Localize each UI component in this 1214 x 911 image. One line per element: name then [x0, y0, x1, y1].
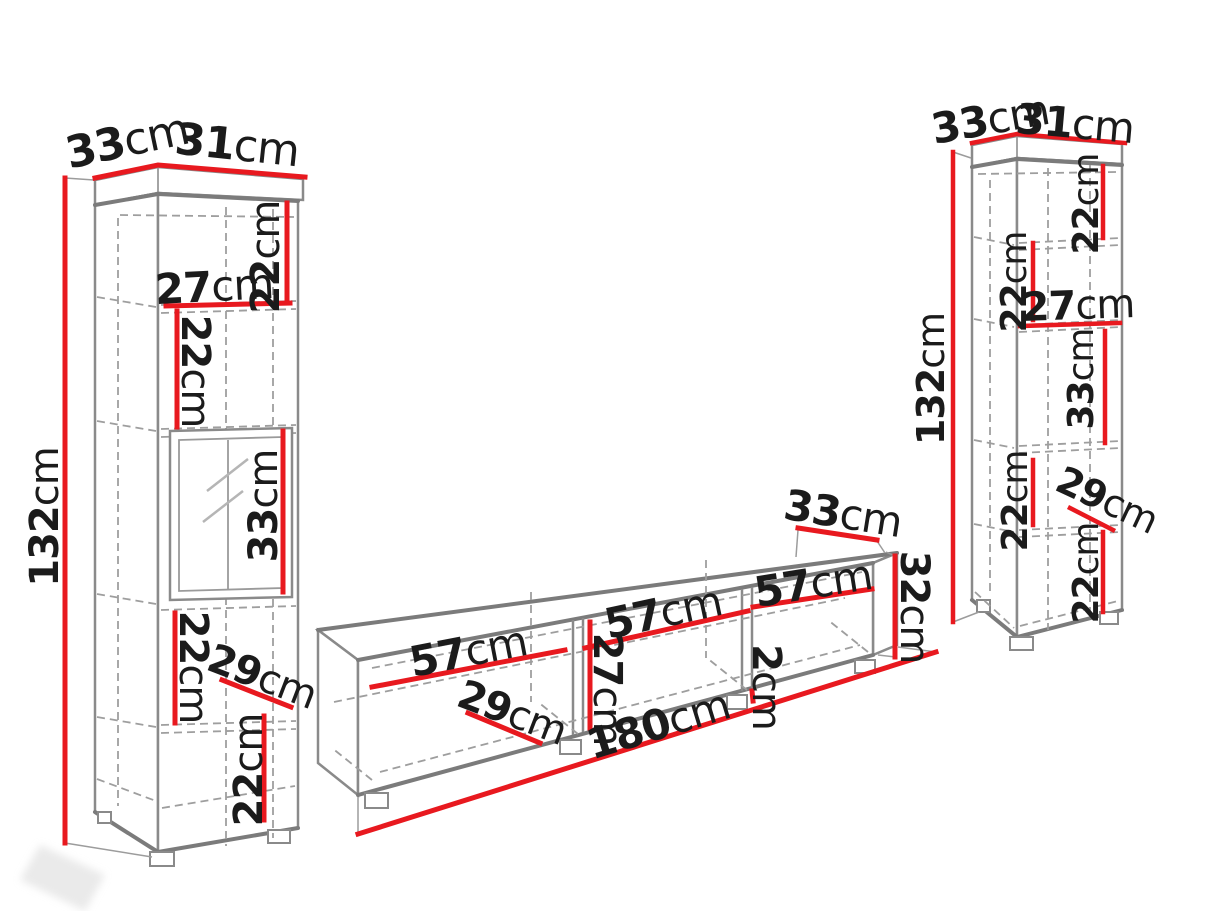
- cabinet-foot: [98, 812, 111, 823]
- tv-stand-left-side: [318, 630, 358, 795]
- dim-label-section: 22cm: [172, 315, 218, 428]
- dim-label-section: 22cm: [995, 451, 1036, 552]
- dim-label-glass-section: 33cm: [241, 450, 287, 563]
- cabinet-foot: [1010, 637, 1033, 650]
- cabinet-foot: [268, 830, 290, 843]
- dim-label-panel-gap: 2cm: [743, 644, 789, 730]
- furniture-dimension-diagram: 33cm 31cm 22cm 27cm 22cm 33cm 132cm 22cm…: [0, 0, 1214, 911]
- dim-label-inner-width: 27cm: [1021, 281, 1135, 331]
- dim-label-inner-width: 27cm: [154, 258, 275, 313]
- dim-label-height: 32cm: [891, 551, 937, 664]
- right-cabinet-side-panel: [972, 158, 1017, 637]
- dim-label-height: 132cm: [22, 447, 68, 586]
- cabinet-foot: [150, 852, 174, 866]
- dim-label-mid-section: 33cm: [1061, 329, 1102, 430]
- cabinet-foot: [977, 600, 990, 612]
- floor-shadow: [20, 845, 105, 911]
- stand-foot: [365, 793, 388, 808]
- dim-label-section: 22cm: [226, 714, 272, 827]
- dim-label-depth: 33cm: [781, 480, 906, 547]
- dim-label-section: 22cm: [1066, 523, 1107, 624]
- dim-label-section: 22cm: [1066, 154, 1107, 255]
- left-cabinet-side-panel: [95, 193, 158, 852]
- diagram-canvas: 33cm 31cm 22cm 27cm 22cm 33cm 132cm 22cm…: [0, 0, 1214, 911]
- stand-foot: [560, 740, 581, 754]
- dim-label-height: 132cm: [909, 313, 953, 445]
- dim-label-width: 31cm: [1014, 93, 1136, 152]
